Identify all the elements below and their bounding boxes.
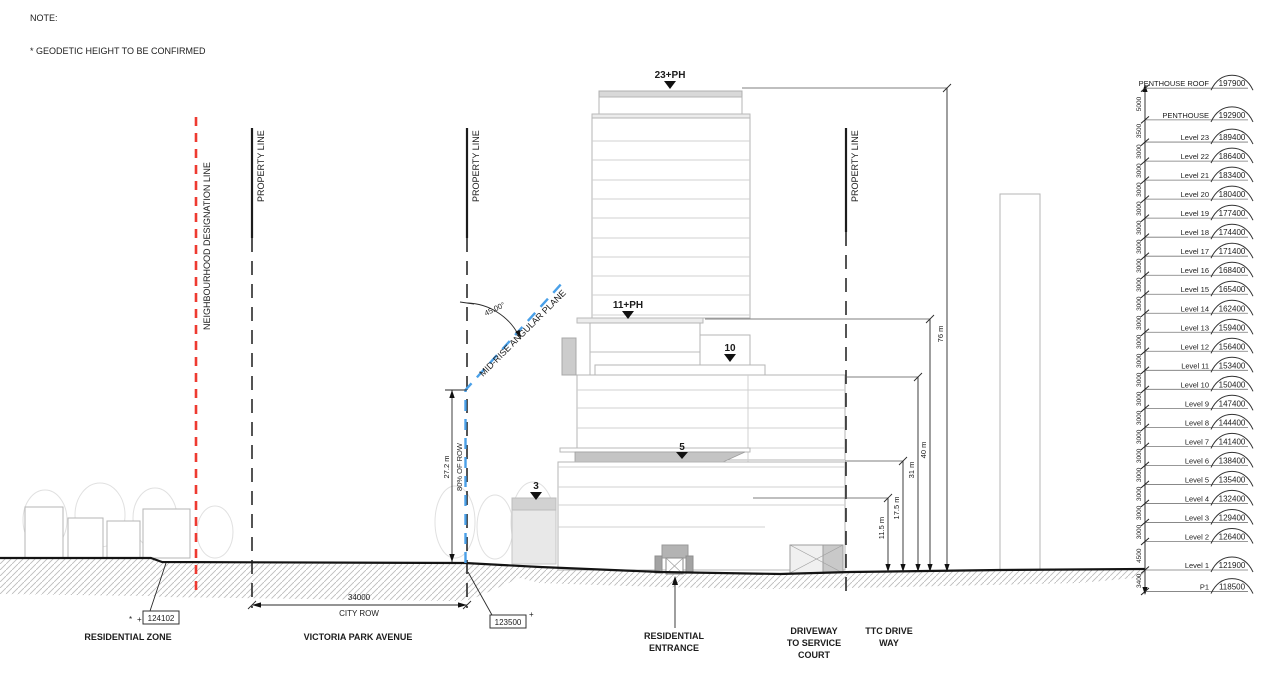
midrise-body <box>577 375 845 460</box>
survey-cross-left: + <box>137 615 142 624</box>
level-name: P1 <box>1200 583 1209 592</box>
geodetic-asterisk: * <box>129 615 132 624</box>
level-name: Level 20 <box>1181 190 1209 199</box>
penthouse-volume <box>599 97 742 115</box>
note-heading: NOTE: <box>30 13 58 23</box>
level-spacing-dim: 3000 <box>1136 296 1143 311</box>
level-spacing-dim: 3000 <box>1136 239 1143 254</box>
residential-zone-label: RESIDENTIAL ZONE <box>84 632 171 642</box>
level-name: Level 16 <box>1181 266 1209 275</box>
level-name: Level 23 <box>1181 133 1209 142</box>
note-item: * GEODETIC HEIGHT TO BE CONFIRMED <box>30 46 206 56</box>
level-spacing-dim: 3000 <box>1136 201 1143 216</box>
level5-canopy <box>575 452 745 462</box>
spot-elevation-left-value: 124102 <box>148 614 175 623</box>
height-17-5: 17.5 m <box>892 497 901 520</box>
level-elevation: 174400 <box>1219 228 1246 237</box>
level-spacing-dim: 3000 <box>1136 429 1143 444</box>
level5-marker: 5 <box>679 442 685 453</box>
midrise-marker: 11+PH <box>613 300 643 311</box>
entrance-side-right <box>686 556 693 573</box>
level-elevation: 153400 <box>1219 361 1246 370</box>
driveway-label-3: COURT <box>798 650 830 660</box>
level-name: Level 19 <box>1181 209 1209 218</box>
height-11-5: 11.5 m <box>877 517 886 539</box>
level-elevation: 177400 <box>1219 209 1246 218</box>
row-height-value: 27.2 m <box>442 456 451 479</box>
neighbourhood-designation-label: NEIGHBOURHOOD DESIGNATION LINE <box>202 162 212 330</box>
level-elevation: 150400 <box>1219 380 1246 389</box>
level-name: PENTHOUSE <box>1162 111 1209 120</box>
level-spacing-dim: 3000 <box>1136 258 1143 273</box>
height-31: 31 m <box>907 462 916 479</box>
level-elevation: 156400 <box>1219 342 1246 351</box>
level-spacing-dim: 3000 <box>1136 524 1143 539</box>
survey-cross-right: + <box>529 610 534 619</box>
level-spacing-dim: 3000 <box>1136 182 1143 197</box>
entrance-header <box>662 545 688 558</box>
site-section-drawing: NOTE: * GEODETIC HEIGHT TO BE CONFIRMED <box>0 0 1280 673</box>
level10-marker: 10 <box>724 343 736 354</box>
level-spacing-dim: 3000 <box>1136 220 1143 235</box>
level-elevation: 118500 <box>1219 583 1246 592</box>
level-spacing-dim: 3000 <box>1136 315 1143 330</box>
level-elevation: 189400 <box>1219 133 1246 142</box>
level-spacing-dim: 3000 <box>1136 391 1143 406</box>
level-elevation: 192900 <box>1219 111 1246 120</box>
level-spacing-dim: 3000 <box>1136 144 1143 159</box>
section-elevation-svg: NOTE: * GEODETIC HEIGHT TO BE CONFIRMED <box>0 0 1280 673</box>
level-elevation: 180400 <box>1219 190 1246 199</box>
level-spacing-dim: 3000 <box>1136 334 1143 349</box>
entrance-label-1: RESIDENTIAL <box>644 631 705 641</box>
level-name: Level 2 <box>1185 532 1209 541</box>
level-spacing-dim: 3500 <box>1136 123 1143 138</box>
driveway-label-2: TO SERVICE <box>787 638 841 648</box>
level-spacing-dim: 3000 <box>1136 505 1143 520</box>
level3-marker: 3 <box>533 481 539 492</box>
level-name: Level 4 <box>1185 494 1209 503</box>
level-name: Level 12 <box>1181 342 1209 351</box>
level-elevation: 132400 <box>1219 494 1246 503</box>
entrance-side-left <box>655 556 662 573</box>
level-elevation: 162400 <box>1219 304 1246 313</box>
tower-top-slab <box>592 114 750 118</box>
level-name: Level 1 <box>1185 561 1209 570</box>
level-elevation: 197900 <box>1219 79 1246 88</box>
level-name: Level 18 <box>1181 228 1209 237</box>
level-name: Level 17 <box>1181 247 1209 256</box>
level-elevation: 141400 <box>1219 437 1246 446</box>
ttc-label-1: TTC DRIVE <box>865 626 913 636</box>
property-line-right-label: PROPERTY LINE <box>850 130 860 202</box>
level-name: Level 15 <box>1181 285 1209 294</box>
level-name: Level 8 <box>1185 418 1209 427</box>
level-name: Level 9 <box>1185 399 1209 408</box>
height-40: 40 m <box>919 442 928 459</box>
level-spacing-dim: 3000 <box>1136 448 1143 463</box>
level-name: Level 13 <box>1181 323 1209 332</box>
level-name: Level 14 <box>1181 304 1209 313</box>
driveway-label-1: DRIVEWAY <box>790 626 837 636</box>
level-elevation: 168400 <box>1219 266 1246 275</box>
level-elevation: 126400 <box>1219 532 1246 541</box>
midrise-roof-slab <box>577 318 703 323</box>
entrance-label-2: ENTRANCE <box>649 643 699 653</box>
level-name: Level 3 <box>1185 513 1209 522</box>
level-spacing-dim: 4500 <box>1136 548 1143 563</box>
level-name: Level 11 <box>1181 361 1209 370</box>
level-name: Level 22 <box>1181 152 1209 161</box>
tower-marker: 23+PH <box>655 70 686 81</box>
level-elevation: 138400 <box>1219 456 1246 465</box>
level-elevation: 135400 <box>1219 475 1246 484</box>
level-name: Level 6 <box>1185 456 1209 465</box>
ttc-label-2: WAY <box>879 638 899 648</box>
level-spacing-dim: 5000 <box>1136 96 1143 111</box>
level-elevation: 147400 <box>1219 399 1246 408</box>
level-spacing-dim: 3000 <box>1136 410 1143 425</box>
level-name: PENTHOUSE ROOF <box>1139 79 1210 88</box>
level-elevation: 171400 <box>1219 247 1246 256</box>
penthouse-roof-band <box>599 91 742 97</box>
level-elevation: 183400 <box>1219 171 1246 180</box>
midrise-side-box <box>562 338 576 375</box>
property-line-mid-label: PROPERTY LINE <box>471 130 481 202</box>
level-elevation: 144400 <box>1219 418 1246 427</box>
level-name: Level 5 <box>1185 475 1209 484</box>
level-name: Level 10 <box>1181 380 1209 389</box>
level5-slab-edge <box>560 448 750 452</box>
level-spacing-dim: 3000 <box>1136 486 1143 501</box>
podium-roof-band <box>512 498 556 510</box>
city-row-name: CITY ROW <box>339 609 379 618</box>
service-court-gray <box>823 545 843 573</box>
level-spacing-dim: 3000 <box>1136 467 1143 482</box>
spot-elevation-right-value: 123500 <box>495 618 522 627</box>
level-spacing-dim: 3000 <box>1136 353 1143 368</box>
level-spacing-dim: 3000 <box>1136 163 1143 178</box>
level-elevation: 129400 <box>1219 513 1246 522</box>
property-line-left-label: PROPERTY LINE <box>256 130 266 202</box>
level-elevation: 186400 <box>1219 152 1246 161</box>
level-spacing-dim: 3000 <box>1136 277 1143 292</box>
level10-slab <box>595 365 765 375</box>
background-building <box>1000 194 1040 570</box>
level-elevation: 165400 <box>1219 285 1246 294</box>
city-row-value: 34000 <box>348 593 371 602</box>
row-share-value: 80% OF ROW <box>455 442 464 491</box>
level-spacing-dim: 3400 <box>1136 573 1143 588</box>
level-name: Level 7 <box>1185 437 1209 446</box>
level-elevation: 159400 <box>1219 323 1246 332</box>
height-76: 76 m <box>936 326 945 343</box>
level-spacing-dim: 3000 <box>1136 372 1143 387</box>
level-name: Level 21 <box>1181 171 1209 180</box>
avenue-label: VICTORIA PARK AVENUE <box>304 632 413 642</box>
level-elevation: 121900 <box>1219 561 1246 570</box>
